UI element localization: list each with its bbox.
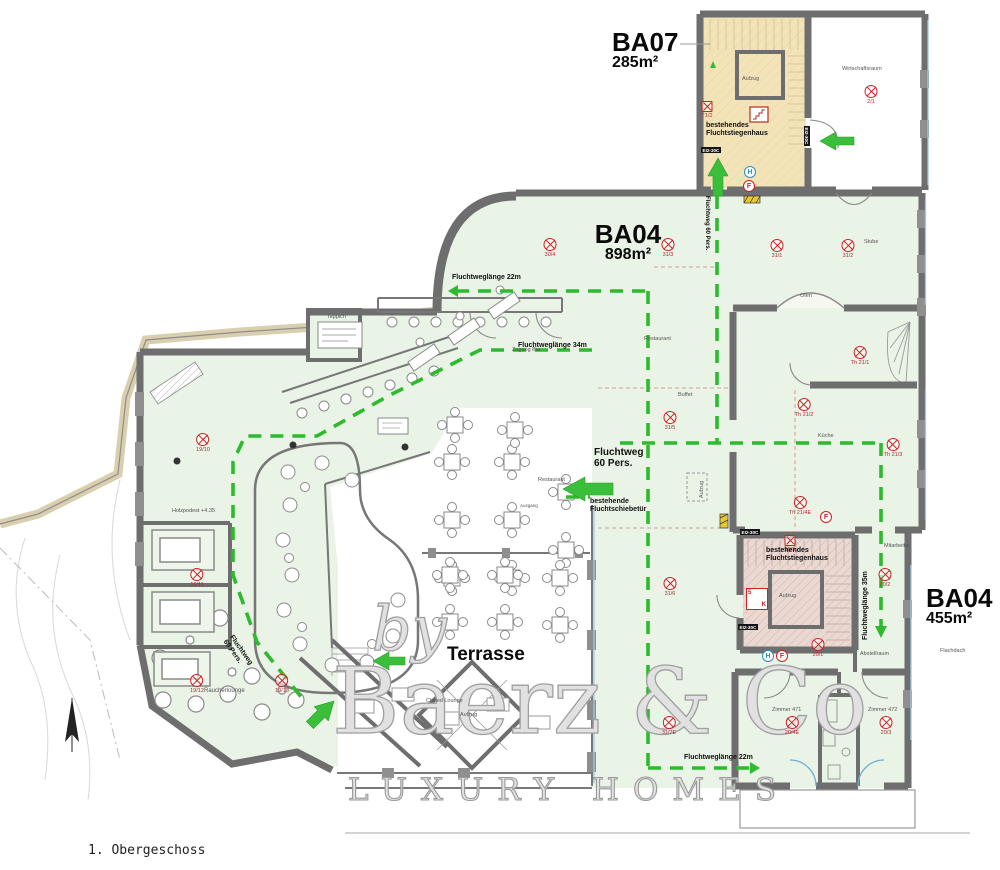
stair-pictogram [750,107,768,122]
circle-x-icon [786,716,799,729]
escape-label: Fluchtweglänge 22m [452,274,521,282]
hydrant-extinguisher-badge: F [820,511,832,523]
symbol-code: T1/2 [701,113,712,119]
symbol-code: 20/1 [813,652,824,658]
room-label: Flachdach [940,648,965,654]
terrace-label: Terrasse [447,644,525,666]
hydrant-extinguisher-badge: H [744,166,756,178]
circle-x-icon [190,674,203,687]
circle-x-icon [771,239,784,252]
room-label: Abstellraum [860,651,889,657]
room-label: Ofen [800,293,812,299]
symbol-code: 19/13 [275,688,289,694]
north-arrow-icon [65,698,79,752]
symbol-code: Th 21/1 [851,360,870,366]
room-label: Wirtschaftsraum [842,66,882,72]
circle-x-icon [663,716,676,729]
floorplan-page: by Baerz & Co LUXURY HOMES BA07 285m² BA… [0,0,1000,870]
room-label: Aufzug [742,76,759,82]
circle-x-icon [880,716,893,729]
symbol-code: 20/4E [785,730,799,736]
symbol-code: 31/6 [665,591,676,597]
area-name: BA04 [568,222,688,247]
fire-symbol: Th 21/4E [789,496,811,516]
circle-x-icon [879,568,892,581]
symbol-code: Th 21/2 [795,412,814,418]
room-label: Küche [818,433,834,439]
fire-rating-label: EI2-30C [740,529,760,535]
room-label: Restaurant [538,477,565,483]
circle-x-icon [842,239,855,252]
symbol-code: 19/10 [196,447,210,453]
circle-x-icon [190,568,203,581]
fire-symbol: 31/2 [842,239,855,259]
fire-symbol: Th 21/2 [795,398,814,418]
circle-x-icon [887,438,900,451]
escape-label: Fluchtweglänge 35m [862,571,870,640]
fire-symbol: 19/11 [190,568,203,588]
fire-symbol: 20/4E [785,716,799,736]
area-label-ba07: BA07 285m² [612,30,678,70]
symbol-code: 30/4 [545,252,556,258]
circle-x-icon [544,238,557,251]
circle-x-icon [812,638,825,651]
symbol-code: 31/2 [843,253,854,259]
fire-rating-label: EI2-30C [701,147,721,153]
room-label: Stube [864,239,878,245]
area-name: BA04 [926,586,992,611]
fire-symbol: 31/6 [664,577,677,597]
fire-symbol: 19/12 [190,674,204,694]
fire-symbol: Th 21/1 [851,346,870,366]
hydrant-extinguisher-badge: F [743,180,755,192]
fire-symbol: 19/10 [196,433,210,453]
fire-rating-label: EI2-30C [738,624,758,630]
circle-x-icon [854,346,867,359]
escape-label: Fluchtweg 60 Pers. [594,448,643,470]
room-label: Aufzug [779,593,796,599]
escape-label: Fluchtweglänge 34m [518,342,587,350]
room-label: Chilled Lounge [426,698,463,704]
fire-symbol: 2/1 [865,85,878,105]
drawing-title: 1. Obergeschoss [88,843,205,858]
symbol-code: 19/11 [190,582,203,588]
symbol-code: 31/7E [662,730,676,736]
fire-symbol: 30/4 [544,238,557,258]
symbol-code: 31/1 [772,253,783,259]
area-name: BA07 [612,30,678,55]
circle-x-icon [701,101,712,112]
fire-symbol: Th 21/3 [884,438,903,458]
hydrant-extinguisher-badge: H [762,650,774,662]
stair-sign-letter: K [762,602,766,608]
fire-symbol: 20/3 [880,716,893,736]
escape-label: bestehendes Fluchtstiegenhaus [766,547,828,562]
room-label: Zimmer 471 [772,707,801,713]
circle-x-icon [664,577,677,590]
bay-couches [152,530,214,686]
fire-symbol: 20/1 [812,638,825,658]
room-label: Zimmer 472 [868,707,897,713]
symbol-code: 20/2 [880,582,891,588]
fire-symbol: T1/2 [701,101,712,119]
escape-label: Fluchtweglänge 22m [684,754,753,762]
area-size: 898m² [568,247,688,262]
circle-x-icon [664,411,677,424]
room-label: Mitarbeiter [884,543,910,549]
fire-symbol: 31/5 [664,411,677,431]
area-label-ba04-east: BA04 455m² [926,586,992,626]
watermark-tagline: LUXURY HOMES [348,772,790,808]
fire-symbol: 20/2 [879,568,892,588]
circle-x-icon [865,85,878,98]
room-label: Raucherlounge [204,688,245,695]
symbol-code: Th 21/4E [789,510,811,516]
fire-symbol: 31/1 [771,239,784,259]
fire-symbol: 31/7E [662,716,676,736]
circle-x-icon [793,496,806,509]
symbol-code: 31/5 [665,425,676,431]
fire-rating-label: EI2-30C [804,126,810,146]
symbol-code: 19/12 [190,688,204,694]
room-label: Aufzug [699,481,705,498]
fire-symbol: 19/13 [275,674,289,694]
room-label: Restaurant [644,336,671,342]
room-label: Buffet [678,392,692,398]
circle-x-icon [798,398,811,411]
room-label: Teppich [327,314,346,320]
circle-x-icon [275,674,288,687]
stair-sign-number: 5 [748,590,751,596]
escape-label: Fluchtweg 60 Pers. [704,196,710,250]
watermark-brand: Baerz & Co [332,648,868,755]
room-label: Ausgang [520,504,538,509]
site-contours [16,480,130,800]
symbol-code: 2/1 [867,99,875,105]
symbol-code: Th 21/3 [884,452,903,458]
area-label-ba04-main: BA04 898m² [568,222,688,262]
hydrant-extinguisher-badge: F [776,650,788,662]
room-label: Holzpodest +4.35 [172,508,215,514]
escape-label: bestehendes Fluchtstiegenhaus [706,122,768,137]
circle-x-icon [785,535,796,546]
circle-x-icon [196,433,209,446]
symbol-code: 20/3 [881,730,892,736]
escape-label: bestehende Fluchtschiebetür [590,498,646,513]
stair-sign-5k: 5 K [746,588,768,610]
room-label: Aufzug [460,712,477,718]
